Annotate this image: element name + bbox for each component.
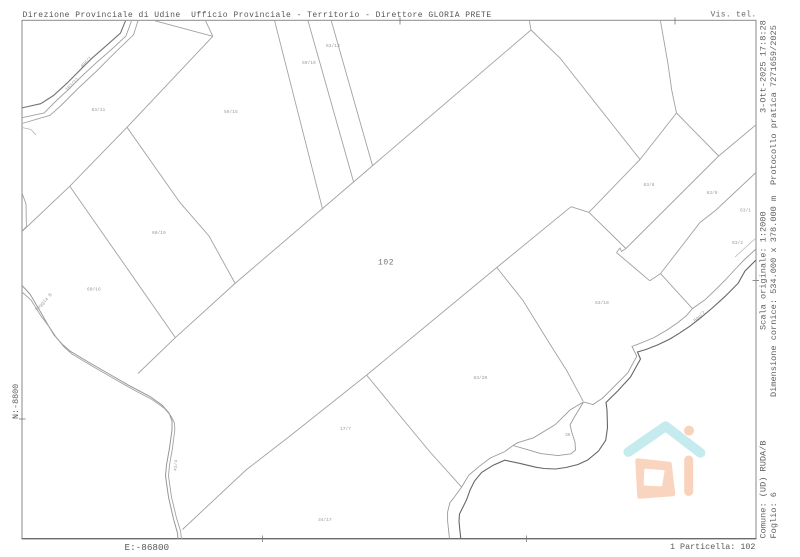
svg-text:N:-8800: N:-8800 [11, 384, 21, 419]
svg-text:17/7: 17/7 [340, 426, 351, 432]
svg-text:E:-86800: E:-86800 [125, 542, 170, 553]
svg-text:63/1: 63/1 [740, 208, 751, 214]
svg-text:Comune: (UD) RUDA/B: Comune: (UD) RUDA/B [759, 441, 769, 539]
svg-text:60/19: 60/19 [152, 230, 166, 236]
svg-text:Direzione Provinciale di Udine: Direzione Provinciale di Udine Ufficio P… [23, 11, 492, 20]
svg-text:1 Particella: 102: 1 Particella: 102 [670, 542, 755, 552]
svg-text:63/9: 63/9 [707, 190, 718, 196]
svg-text:63/13: 63/13 [326, 43, 340, 49]
svg-text:63/2: 63/2 [732, 240, 743, 246]
svg-text:Scala originale: 1:2000: Scala originale: 1:2000 [759, 211, 769, 330]
svg-text:59/15: 59/15 [224, 109, 238, 115]
svg-text:35: 35 [565, 432, 571, 438]
svg-text:41/4: 41/4 [173, 459, 180, 471]
svg-text:Protocollo pratica 7271659/202: Protocollo pratica 7271659/2025 [769, 25, 779, 185]
svg-text:Vis. tel.: Vis. tel. [711, 11, 757, 20]
svg-text:63/20: 63/20 [474, 375, 488, 381]
svg-text:63/11: 63/11 [92, 107, 106, 113]
svg-text:34/17: 34/17 [318, 517, 332, 523]
svg-text:Foglio: 6: Foglio: 6 [769, 492, 779, 538]
svg-text:3-Ott-2025 17:8:28: 3-Ott-2025 17:8:28 [759, 20, 769, 113]
svg-text:63/8: 63/8 [644, 182, 655, 188]
svg-text:102: 102 [378, 259, 394, 268]
svg-text:60/16: 60/16 [87, 287, 101, 293]
svg-text:63/10: 63/10 [595, 300, 609, 306]
svg-text:Dimensione cornice: 534.000 x: Dimensione cornice: 534.000 x 378.000 m [769, 196, 779, 397]
svg-text:59/19: 59/19 [302, 60, 316, 66]
